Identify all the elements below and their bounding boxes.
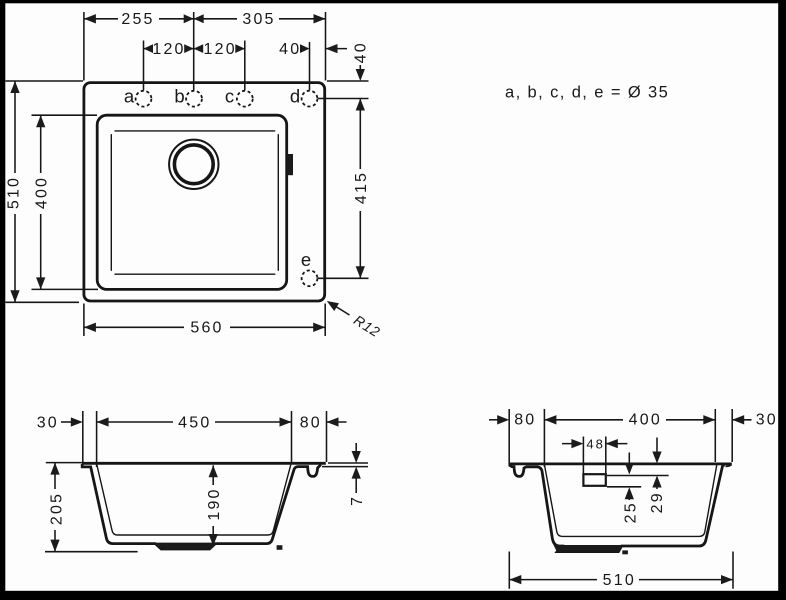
svg-text:305: 305 (242, 11, 275, 28)
svg-text:a, b, c, d, e = Ø 35: a, b, c, d, e = Ø 35 (505, 83, 669, 101)
svg-text:40: 40 (279, 41, 301, 58)
svg-text:120: 120 (204, 41, 237, 58)
svg-text:120: 120 (152, 41, 185, 58)
svg-text:30: 30 (756, 412, 778, 429)
svg-text:25: 25 (623, 501, 640, 523)
svg-text:450: 450 (178, 414, 211, 431)
svg-text:29: 29 (649, 491, 666, 513)
svg-text:7: 7 (349, 495, 366, 506)
svg-text:30: 30 (37, 414, 59, 431)
svg-text:c: c (225, 86, 234, 107)
svg-text:560: 560 (190, 320, 223, 337)
svg-text:205: 205 (48, 492, 65, 525)
svg-text:400: 400 (629, 412, 662, 429)
svg-text:190: 190 (206, 487, 223, 520)
svg-text:80: 80 (514, 412, 536, 429)
svg-text:b: b (174, 86, 184, 107)
svg-text:80: 80 (300, 414, 322, 431)
svg-text:e: e (301, 249, 311, 270)
svg-text:415: 415 (353, 171, 370, 204)
svg-text:d: d (290, 86, 300, 107)
svg-text:510: 510 (603, 572, 636, 589)
svg-text:400: 400 (33, 176, 50, 209)
svg-text:a: a (124, 86, 135, 107)
svg-text:40: 40 (352, 41, 369, 63)
svg-text:510: 510 (5, 176, 22, 209)
svg-text:48: 48 (586, 437, 604, 452)
svg-text:255: 255 (121, 11, 154, 28)
